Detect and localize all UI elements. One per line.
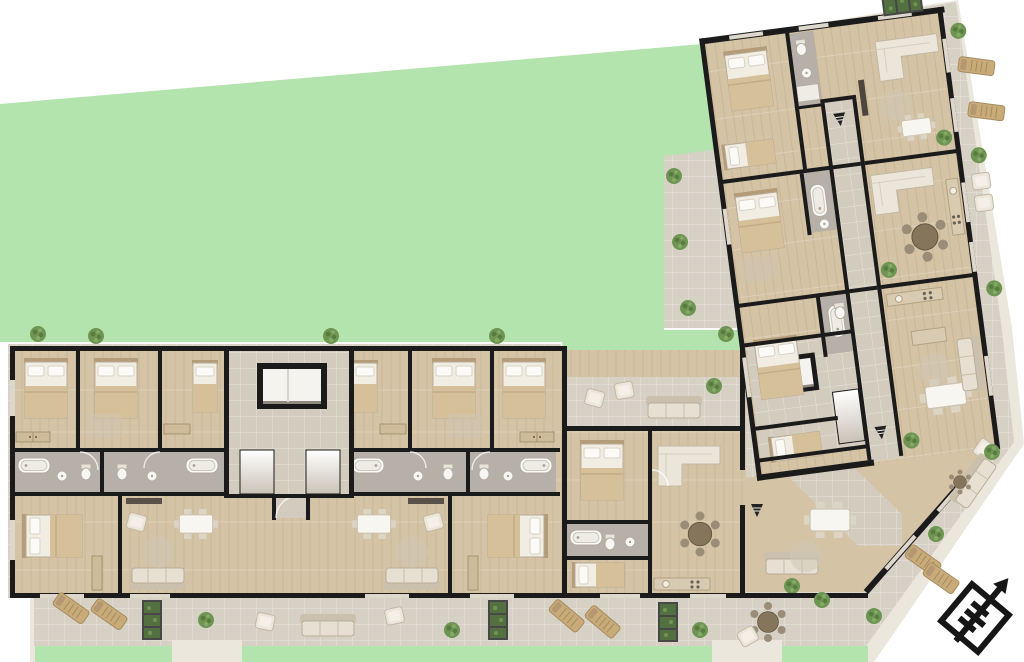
plant-icon — [88, 328, 104, 344]
armchair-icon — [614, 381, 635, 400]
plant-icon — [323, 328, 339, 344]
bathtub-icon — [570, 530, 602, 545]
plant-icon — [706, 378, 722, 394]
garden-lawn — [0, 44, 745, 376]
sink-icon — [625, 537, 635, 547]
floor-plan-page — [0, 0, 1024, 662]
plant-icon — [984, 444, 1000, 460]
plant-icon — [444, 622, 460, 638]
armchair-icon — [384, 606, 405, 625]
bed-icon — [734, 188, 785, 253]
rug-icon — [740, 255, 777, 283]
plant-icon — [814, 592, 830, 608]
armchair-icon — [255, 612, 276, 631]
lawn-strip-south-3 — [782, 646, 868, 662]
armchair-icon — [974, 194, 994, 212]
plant-icon — [666, 168, 682, 184]
lawn-strip-south-1 — [35, 646, 172, 662]
stair-flight-icon — [306, 450, 340, 494]
bed-icon — [580, 440, 624, 500]
outdoor-sofa-icon — [300, 614, 356, 636]
plant-icon — [198, 612, 214, 628]
toilet-icon — [605, 534, 615, 550]
planter-icon — [142, 600, 162, 640]
plant-icon — [784, 578, 800, 594]
walkway-stub-1 — [172, 640, 242, 662]
shower-icon — [796, 84, 820, 103]
bed-icon — [723, 46, 774, 111]
planter-icon — [488, 600, 508, 640]
plant-icon — [30, 326, 46, 342]
outdoor-sofa-icon — [646, 396, 702, 418]
armchair-icon — [971, 172, 991, 190]
planter-icon — [658, 602, 678, 642]
floor-plan-canvas — [0, 0, 1024, 662]
plant-icon — [692, 622, 708, 638]
kitchen-counter-icon — [654, 578, 710, 590]
plant-icon — [928, 526, 944, 542]
plant-icon — [680, 300, 696, 316]
elevator-icon — [257, 363, 327, 409]
bed-icon — [572, 562, 624, 588]
plant-icon — [866, 608, 882, 624]
plant-icon — [489, 328, 505, 344]
lawn-strip-south-2 — [242, 646, 712, 662]
stair-flight-icon — [240, 450, 274, 494]
rug-icon — [790, 540, 822, 572]
plant-icon — [672, 234, 688, 250]
plant-icon — [718, 326, 734, 342]
core1-entry — [276, 496, 306, 518]
